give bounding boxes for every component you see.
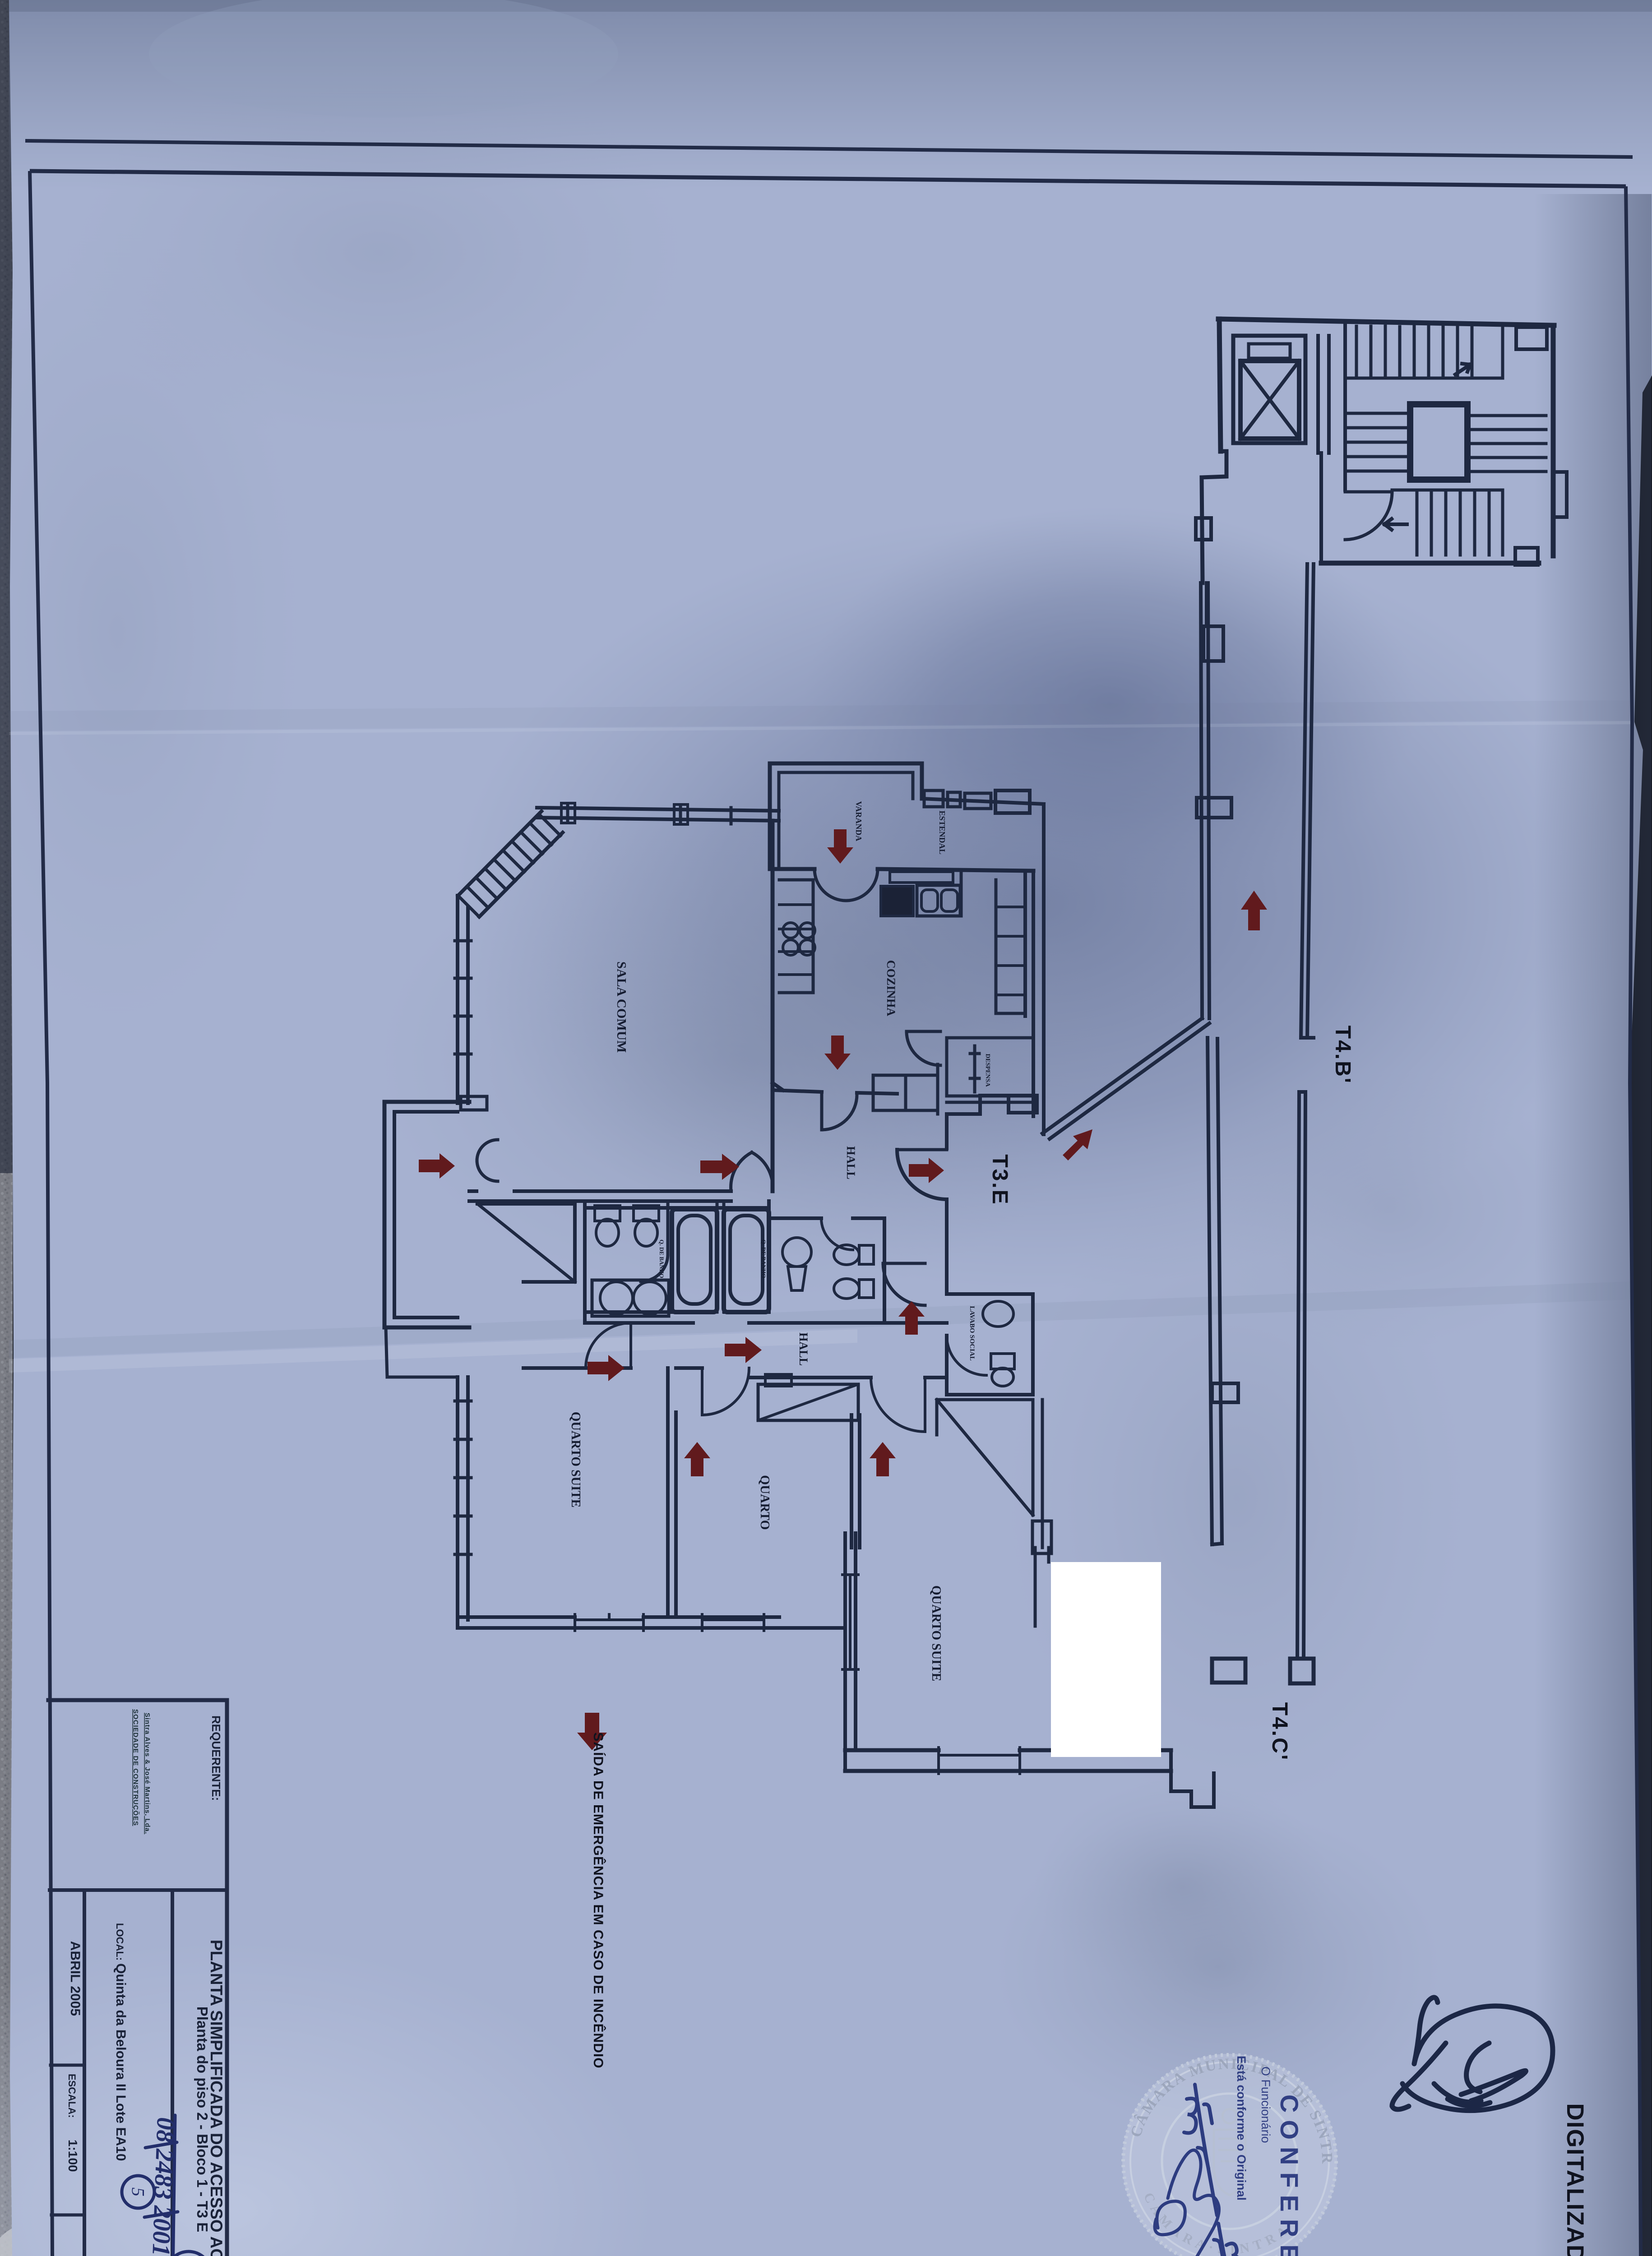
svg-text:Está conforme o Original: Está conforme o Original (1235, 2056, 1248, 2201)
svg-text:CONFERE: CONFERE (1275, 2094, 1304, 2256)
svg-text:O Funcionário: O Funcionário (1259, 2066, 1273, 2143)
svg-text:CÂMARA MUNICIPAL DE SINTRA: CÂMARA MUNICIPAL DE SINTRA (0, 0, 1335, 2165)
